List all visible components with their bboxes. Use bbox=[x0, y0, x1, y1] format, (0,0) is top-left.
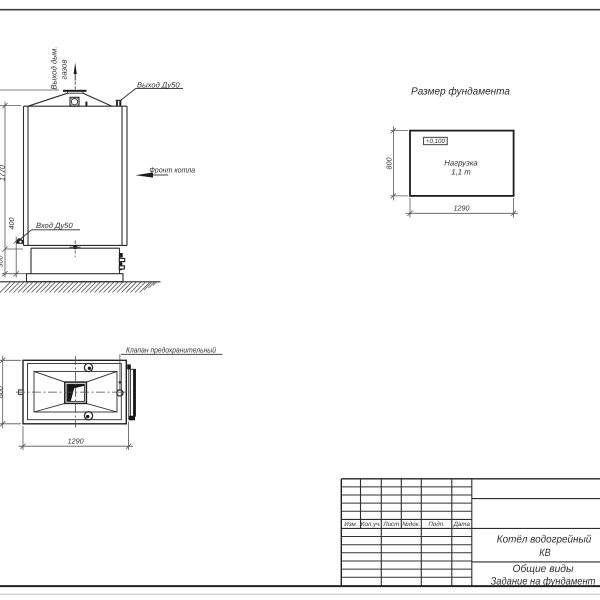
svg-text:Котёл водогрейный: Котёл водогрейный bbox=[497, 534, 592, 546]
svg-text:Изм.: Изм. bbox=[344, 521, 357, 528]
svg-text:Вход Ду50: Вход Ду50 bbox=[36, 221, 74, 230]
svg-text:Дата: Дата bbox=[453, 521, 471, 528]
svg-text:800: 800 bbox=[0, 386, 4, 398]
svg-text:Общие виды: Общие виды bbox=[513, 563, 574, 575]
svg-text:Кол.уч.: Кол.уч. bbox=[361, 521, 381, 528]
svg-text:1290: 1290 bbox=[68, 437, 84, 446]
svg-text:Лист: Лист bbox=[382, 521, 399, 528]
svg-text:Размер фундамента: Размер фундамента bbox=[411, 86, 510, 97]
svg-text:Нагрузка: Нагрузка bbox=[444, 159, 478, 168]
svg-text:1290: 1290 bbox=[454, 204, 470, 213]
svg-text:газов: газов bbox=[60, 60, 69, 80]
svg-text:300: 300 bbox=[0, 256, 4, 268]
svg-text:КВ: КВ bbox=[539, 547, 551, 559]
svg-text:Клапан предохранительный: Клапан предохранительный bbox=[126, 345, 217, 354]
svg-text:1,1 т: 1,1 т bbox=[451, 168, 471, 177]
svg-text:Фронт котла: Фронт котла bbox=[149, 165, 195, 174]
svg-text:Подп.: Подп. bbox=[428, 521, 444, 528]
svg-text:№док.: №док. bbox=[402, 521, 420, 528]
svg-text:1770: 1770 bbox=[0, 165, 7, 181]
svg-text:800: 800 bbox=[385, 158, 394, 170]
svg-text:Выход дым.: Выход дым. bbox=[50, 46, 59, 89]
svg-text:400: 400 bbox=[7, 218, 16, 230]
svg-text:+0,100: +0,100 bbox=[426, 138, 446, 145]
